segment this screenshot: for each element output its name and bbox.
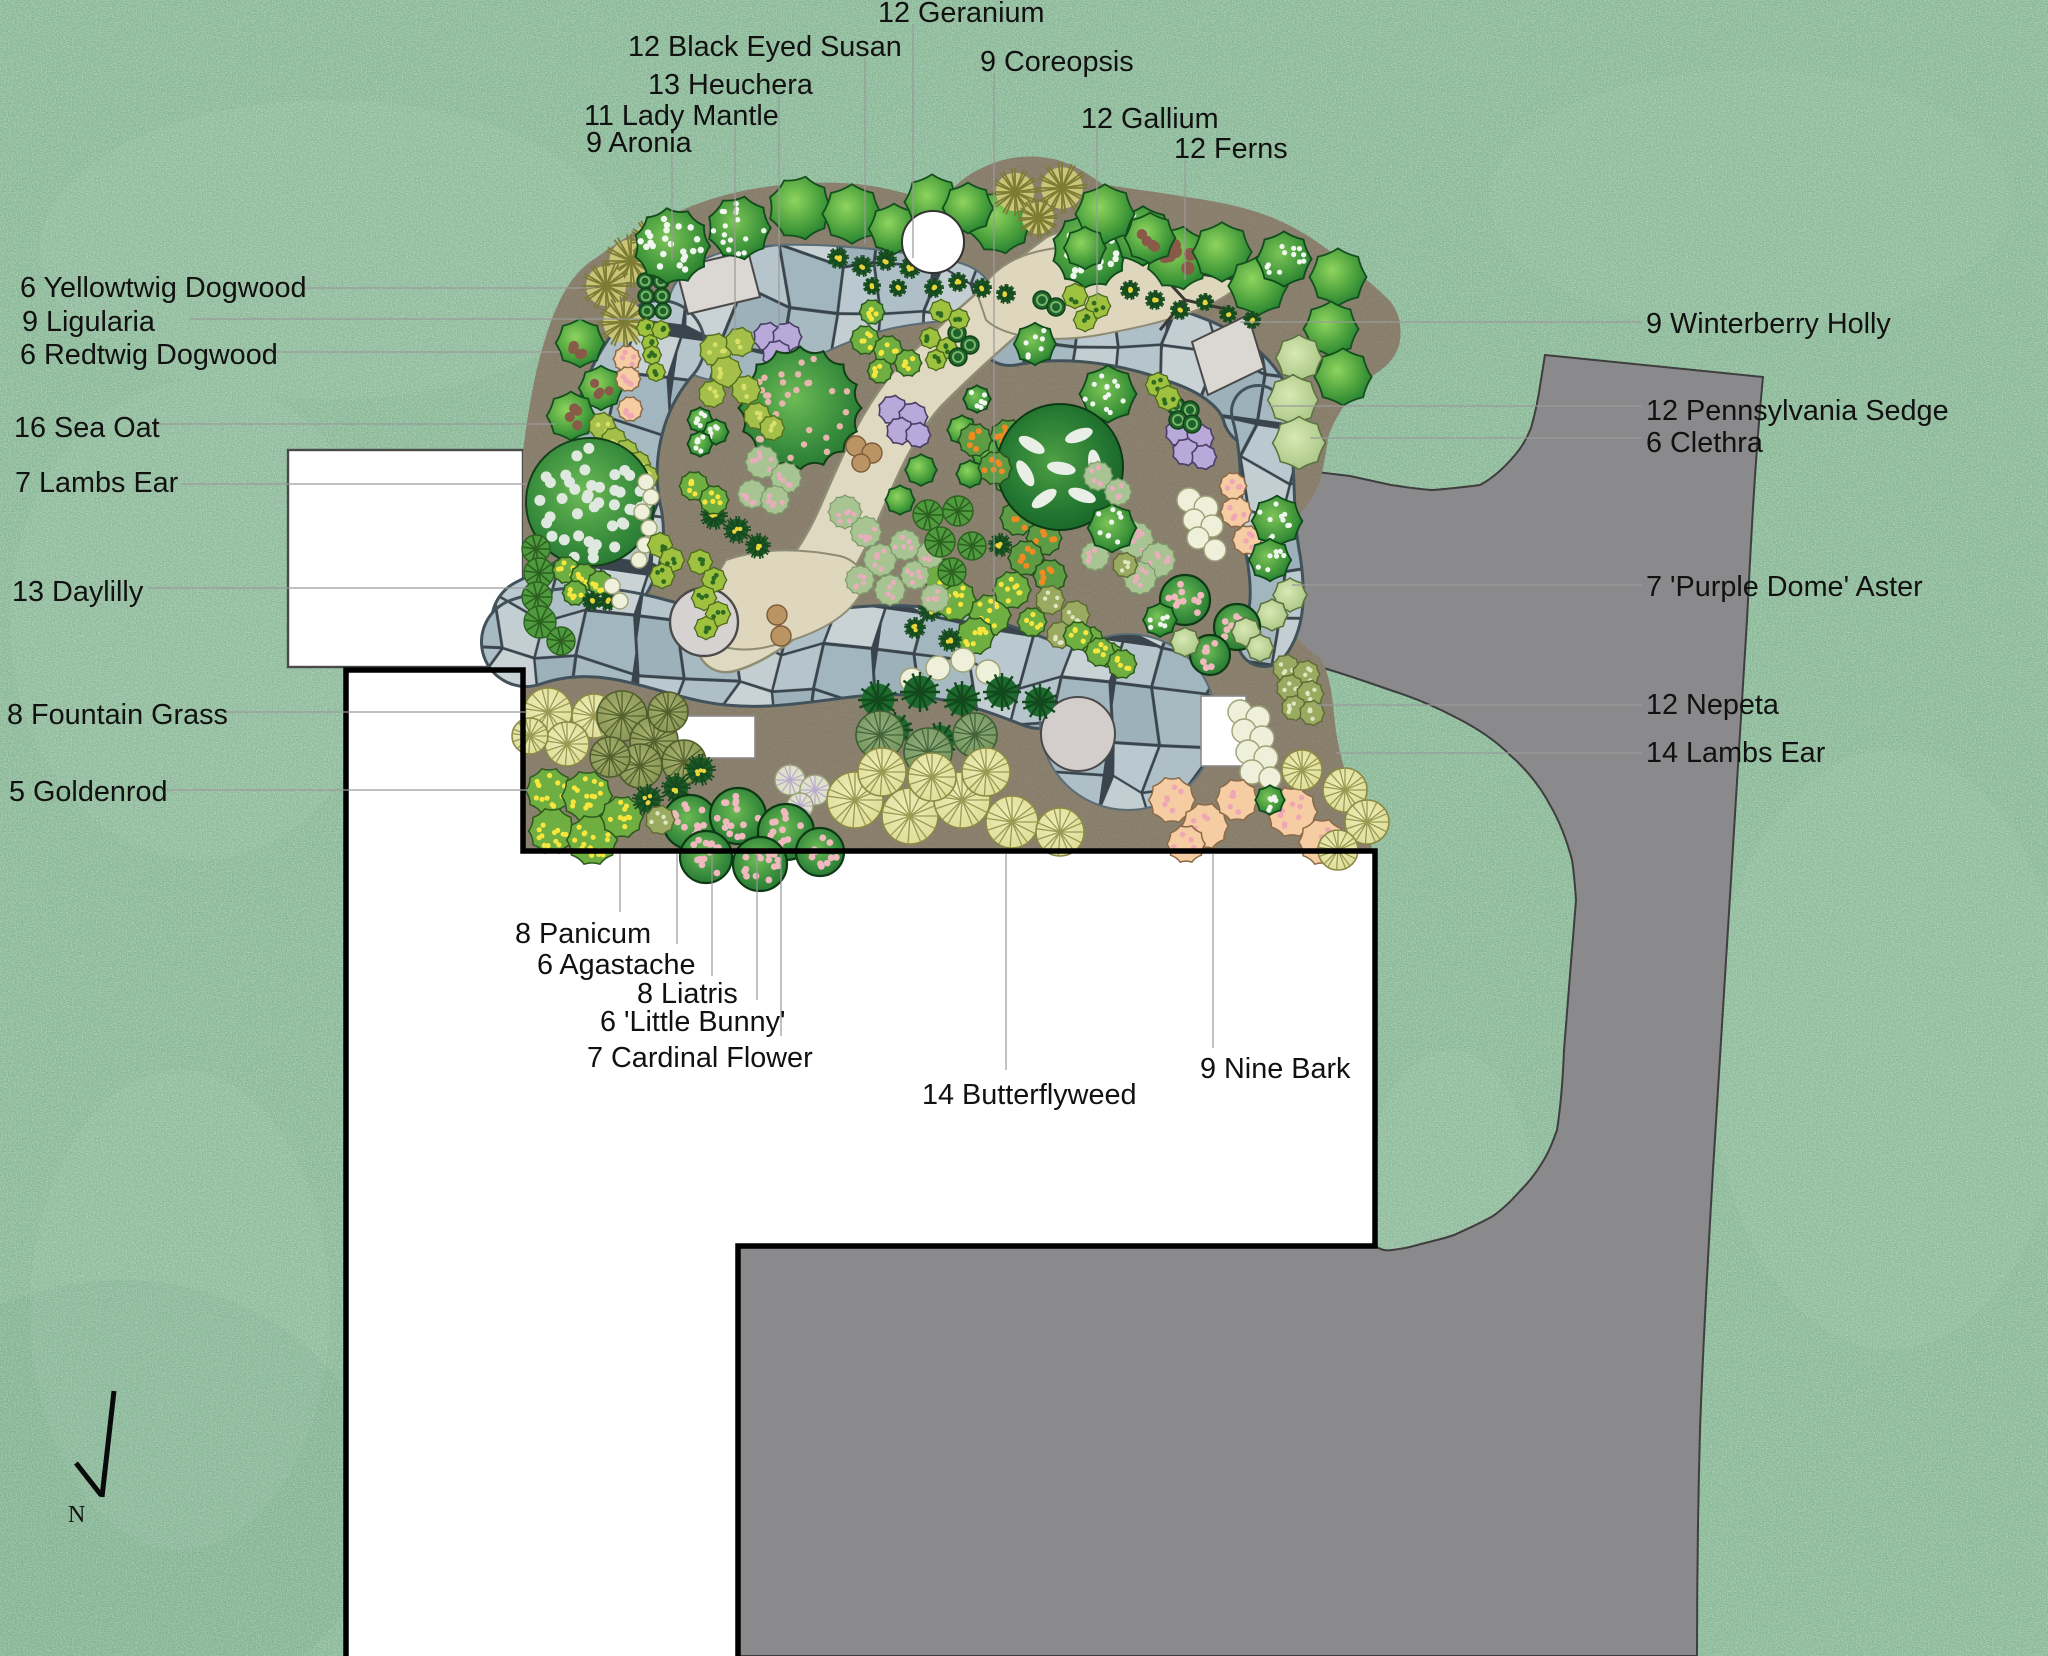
- svg-text:8 Panicum: 8 Panicum: [515, 918, 651, 950]
- svg-text:12 Pennsylvania Sedge: 12 Pennsylvania Sedge: [1646, 395, 1949, 427]
- svg-text:13 Daylilly: 13 Daylilly: [12, 576, 144, 608]
- svg-text:12 Geranium: 12 Geranium: [878, 0, 1044, 29]
- svg-text:12 Nepeta: 12 Nepeta: [1646, 689, 1780, 721]
- svg-text:9 Winterberry Holly: 9 Winterberry Holly: [1646, 308, 1891, 340]
- svg-text:6 Yellowtwig Dogwood: 6 Yellowtwig Dogwood: [20, 272, 307, 304]
- svg-text:9 Coreopsis: 9 Coreopsis: [980, 46, 1134, 78]
- svg-text:12 Black Eyed Susan: 12 Black Eyed Susan: [628, 31, 902, 63]
- svg-text:N: N: [68, 1502, 85, 1528]
- svg-text:6 'Little Bunny': 6 'Little Bunny': [600, 1006, 786, 1038]
- svg-text:7 Cardinal Flower: 7 Cardinal Flower: [587, 1042, 813, 1074]
- svg-text:16 Sea Oat: 16 Sea Oat: [14, 412, 160, 444]
- svg-text:7 'Purple Dome' Aster: 7 'Purple Dome' Aster: [1646, 571, 1923, 603]
- svg-text:9 Aronia: 9 Aronia: [586, 127, 693, 159]
- svg-text:12 Gallium: 12 Gallium: [1081, 103, 1219, 135]
- svg-text:12 Ferns: 12 Ferns: [1174, 133, 1288, 165]
- svg-text:7 Lambs Ear: 7 Lambs Ear: [15, 467, 179, 499]
- svg-text:5 Goldenrod: 5 Goldenrod: [9, 776, 168, 808]
- svg-text:9 Ligularia: 9 Ligularia: [22, 306, 156, 338]
- svg-text:13 Heuchera: 13 Heuchera: [648, 69, 814, 101]
- svg-text:9 Nine Bark: 9 Nine Bark: [1200, 1053, 1351, 1085]
- svg-text:14 Lambs Ear: 14 Lambs Ear: [1646, 737, 1826, 769]
- svg-text:14 Butterflyweed: 14 Butterflyweed: [922, 1079, 1137, 1111]
- svg-text:8 Fountain Grass: 8 Fountain Grass: [7, 699, 228, 731]
- svg-text:6 Clethra: 6 Clethra: [1646, 427, 1764, 459]
- svg-text:6 Redtwig Dogwood: 6 Redtwig Dogwood: [20, 339, 278, 371]
- svg-text:6 Agastache: 6 Agastache: [537, 949, 696, 981]
